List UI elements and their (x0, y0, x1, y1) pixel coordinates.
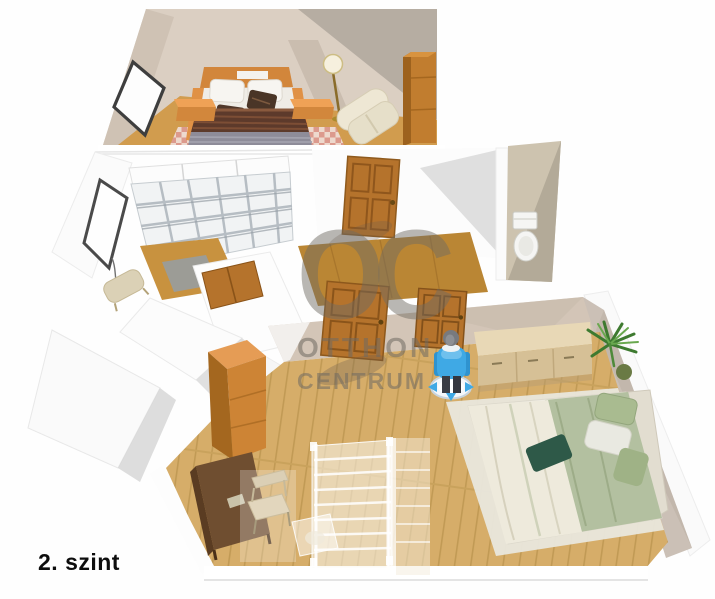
toilet (513, 212, 538, 261)
wardrobe-lower (208, 340, 266, 460)
floorplan-image: OC OTTHON CENTRUM 2. szint (0, 0, 715, 599)
wc-room (496, 141, 561, 282)
nightstand-right (290, 99, 334, 119)
wardrobe-upper (403, 52, 436, 146)
nightstand-left (174, 99, 216, 121)
duvet-gray (188, 132, 312, 146)
dresser (474, 322, 592, 392)
floor-label: 2. szint (38, 549, 120, 576)
upper-bedroom (98, 9, 445, 154)
lower-door-right (415, 288, 467, 349)
floorplan-scene (0, 0, 715, 599)
lower-door-left (321, 281, 389, 360)
